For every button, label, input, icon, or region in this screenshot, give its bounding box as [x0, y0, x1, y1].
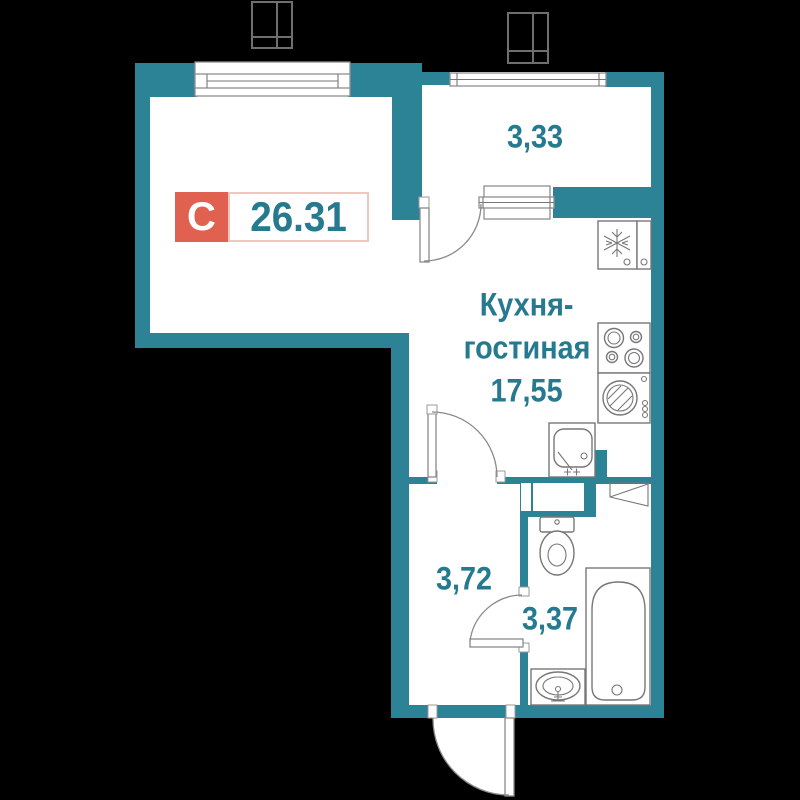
duct-box-top-right — [508, 13, 548, 63]
bathtub-icon — [586, 568, 650, 705]
vent-shaft-notch — [521, 483, 531, 511]
total-area-text: 26.31 — [250, 193, 347, 241]
kitchen-sink-icon — [549, 423, 595, 477]
wall-living-bottom — [135, 333, 409, 348]
wall-sink-stub — [595, 450, 607, 483]
hallway-area-label: 3,72 — [433, 561, 495, 598]
floorplan-page: { "badge": { "letter": "С", "value": "26… — [0, 0, 800, 800]
apartment-type-badge: С 26.31 — [175, 192, 369, 242]
wall-loggia-kitchen — [553, 187, 651, 218]
floor-plan — [0, 0, 800, 800]
loggia-glazing — [450, 73, 606, 86]
living-room-window — [195, 62, 350, 96]
washing-machine-icon — [598, 373, 650, 423]
kitchen-living-name-line1: Кухня- — [480, 284, 574, 327]
loggia-area-label: 3,33 — [504, 119, 566, 156]
wall-living-balcony — [392, 87, 422, 220]
wall-hallway-left — [391, 348, 409, 718]
wall-bathroom-left-upper — [520, 517, 528, 593]
wall-right — [651, 87, 664, 718]
apartment-type-letter: С — [175, 192, 228, 242]
duct-box-top-left — [252, 2, 292, 48]
washbasin-icon — [531, 669, 585, 705]
entrance-door-swing-area — [433, 718, 509, 795]
wall-left — [135, 63, 150, 348]
vent-shaft-opening — [533, 483, 584, 511]
wall-top-left — [135, 63, 197, 97]
stove-icon — [598, 323, 650, 373]
loggia-window — [479, 186, 554, 219]
wall-loggia-left-stub — [422, 72, 450, 85]
total-area-value: 26.31 — [228, 192, 369, 242]
bathroom-area-label: 3,37 — [519, 601, 581, 638]
wall-loggia-top-right — [605, 72, 664, 87]
kitchen-living-name-line2: гостиная — [464, 327, 591, 370]
toilet-icon — [540, 517, 574, 575]
kitchen-living-area: 17,55 — [491, 370, 563, 413]
kitchen-living-label: Кухня- гостиная 17,55 — [457, 284, 598, 413]
fridge-icon — [598, 221, 651, 269]
